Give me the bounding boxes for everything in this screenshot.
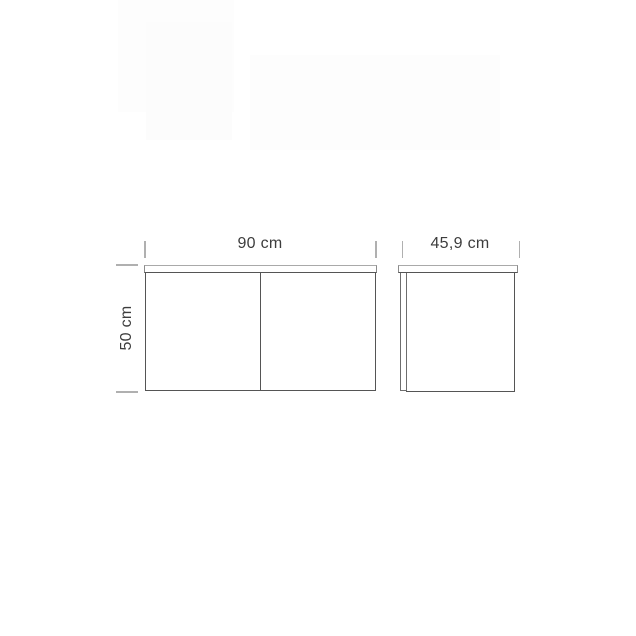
- width-dim-tick-right: [375, 241, 376, 258]
- width-dim-label: 90 cm: [200, 236, 320, 252]
- side-top-panel: [398, 265, 518, 273]
- height-dim-label: 50 cm: [119, 298, 135, 358]
- height-dim-tick-top: [116, 264, 138, 265]
- front-top-panel: [144, 265, 377, 273]
- depth-dim-label: 45,9 cm: [400, 236, 520, 252]
- dimension-diagram: 90 cm 50 cm 45,9 cm: [0, 0, 636, 636]
- side-body-outline: [406, 273, 515, 392]
- height-dim-tick-bottom: [116, 391, 138, 392]
- faint-watermark-artifact: [250, 55, 500, 150]
- side-door-edge: [400, 273, 407, 391]
- faint-watermark-artifact: [118, 0, 234, 112]
- front-door-divider: [260, 273, 262, 390]
- width-dim-tick-left: [144, 241, 145, 258]
- faint-watermark-artifact: [146, 22, 232, 140]
